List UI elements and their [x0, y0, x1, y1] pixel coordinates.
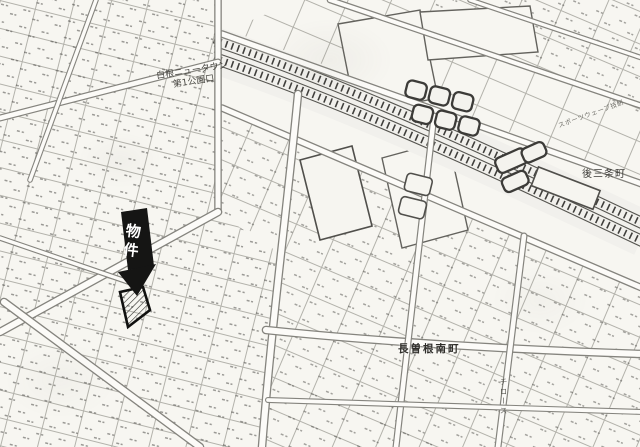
label-gosanjo-cho: 後三条町: [582, 165, 626, 180]
label-nagasone-minami-cho: 長曽根南町: [398, 341, 461, 356]
map-canvas: 白根ニュータウン 第1公園口 後三条町 長曽根南町 スポーツウェーブ技研 チロー…: [0, 0, 640, 447]
map-drawing: [0, 0, 640, 447]
label-road-name-vertical: チロース: [498, 378, 509, 416]
